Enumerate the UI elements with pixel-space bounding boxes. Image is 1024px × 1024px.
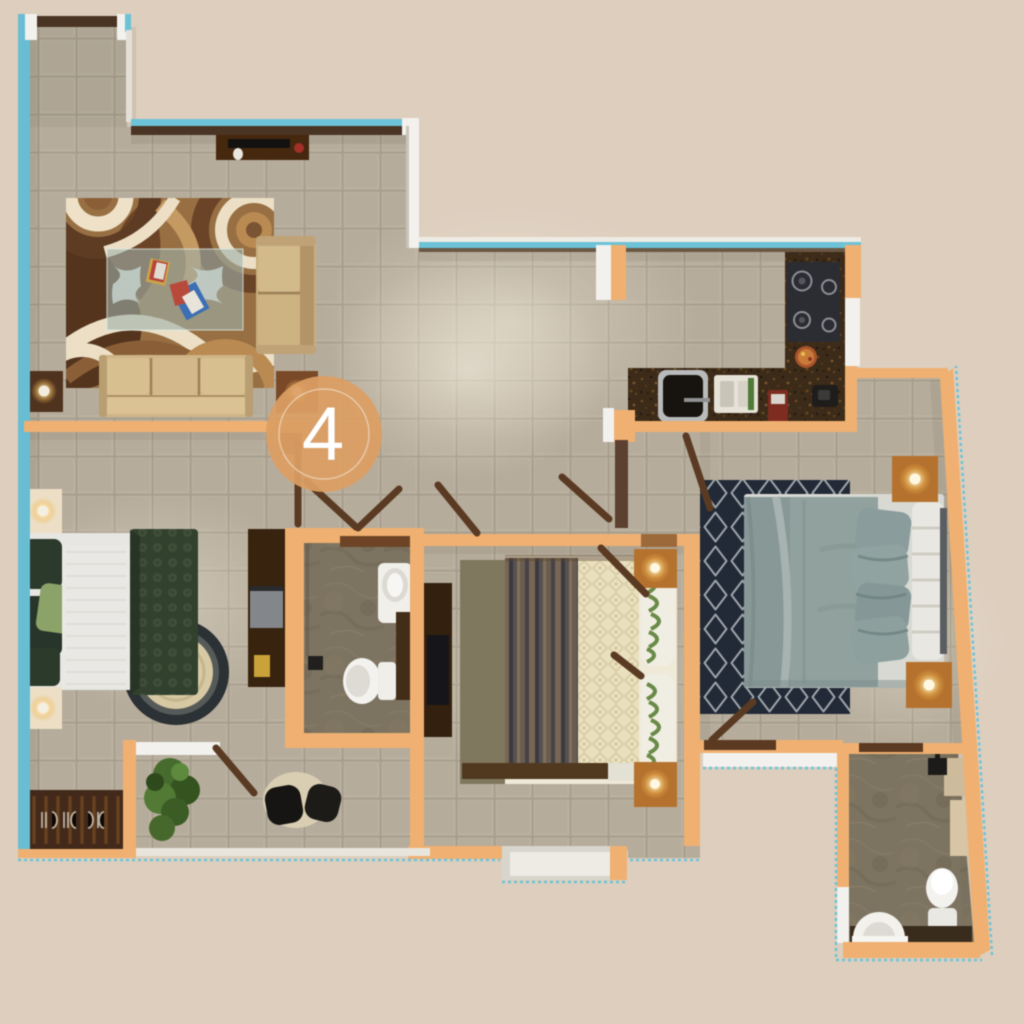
svg-text:4: 4 [302,392,344,477]
